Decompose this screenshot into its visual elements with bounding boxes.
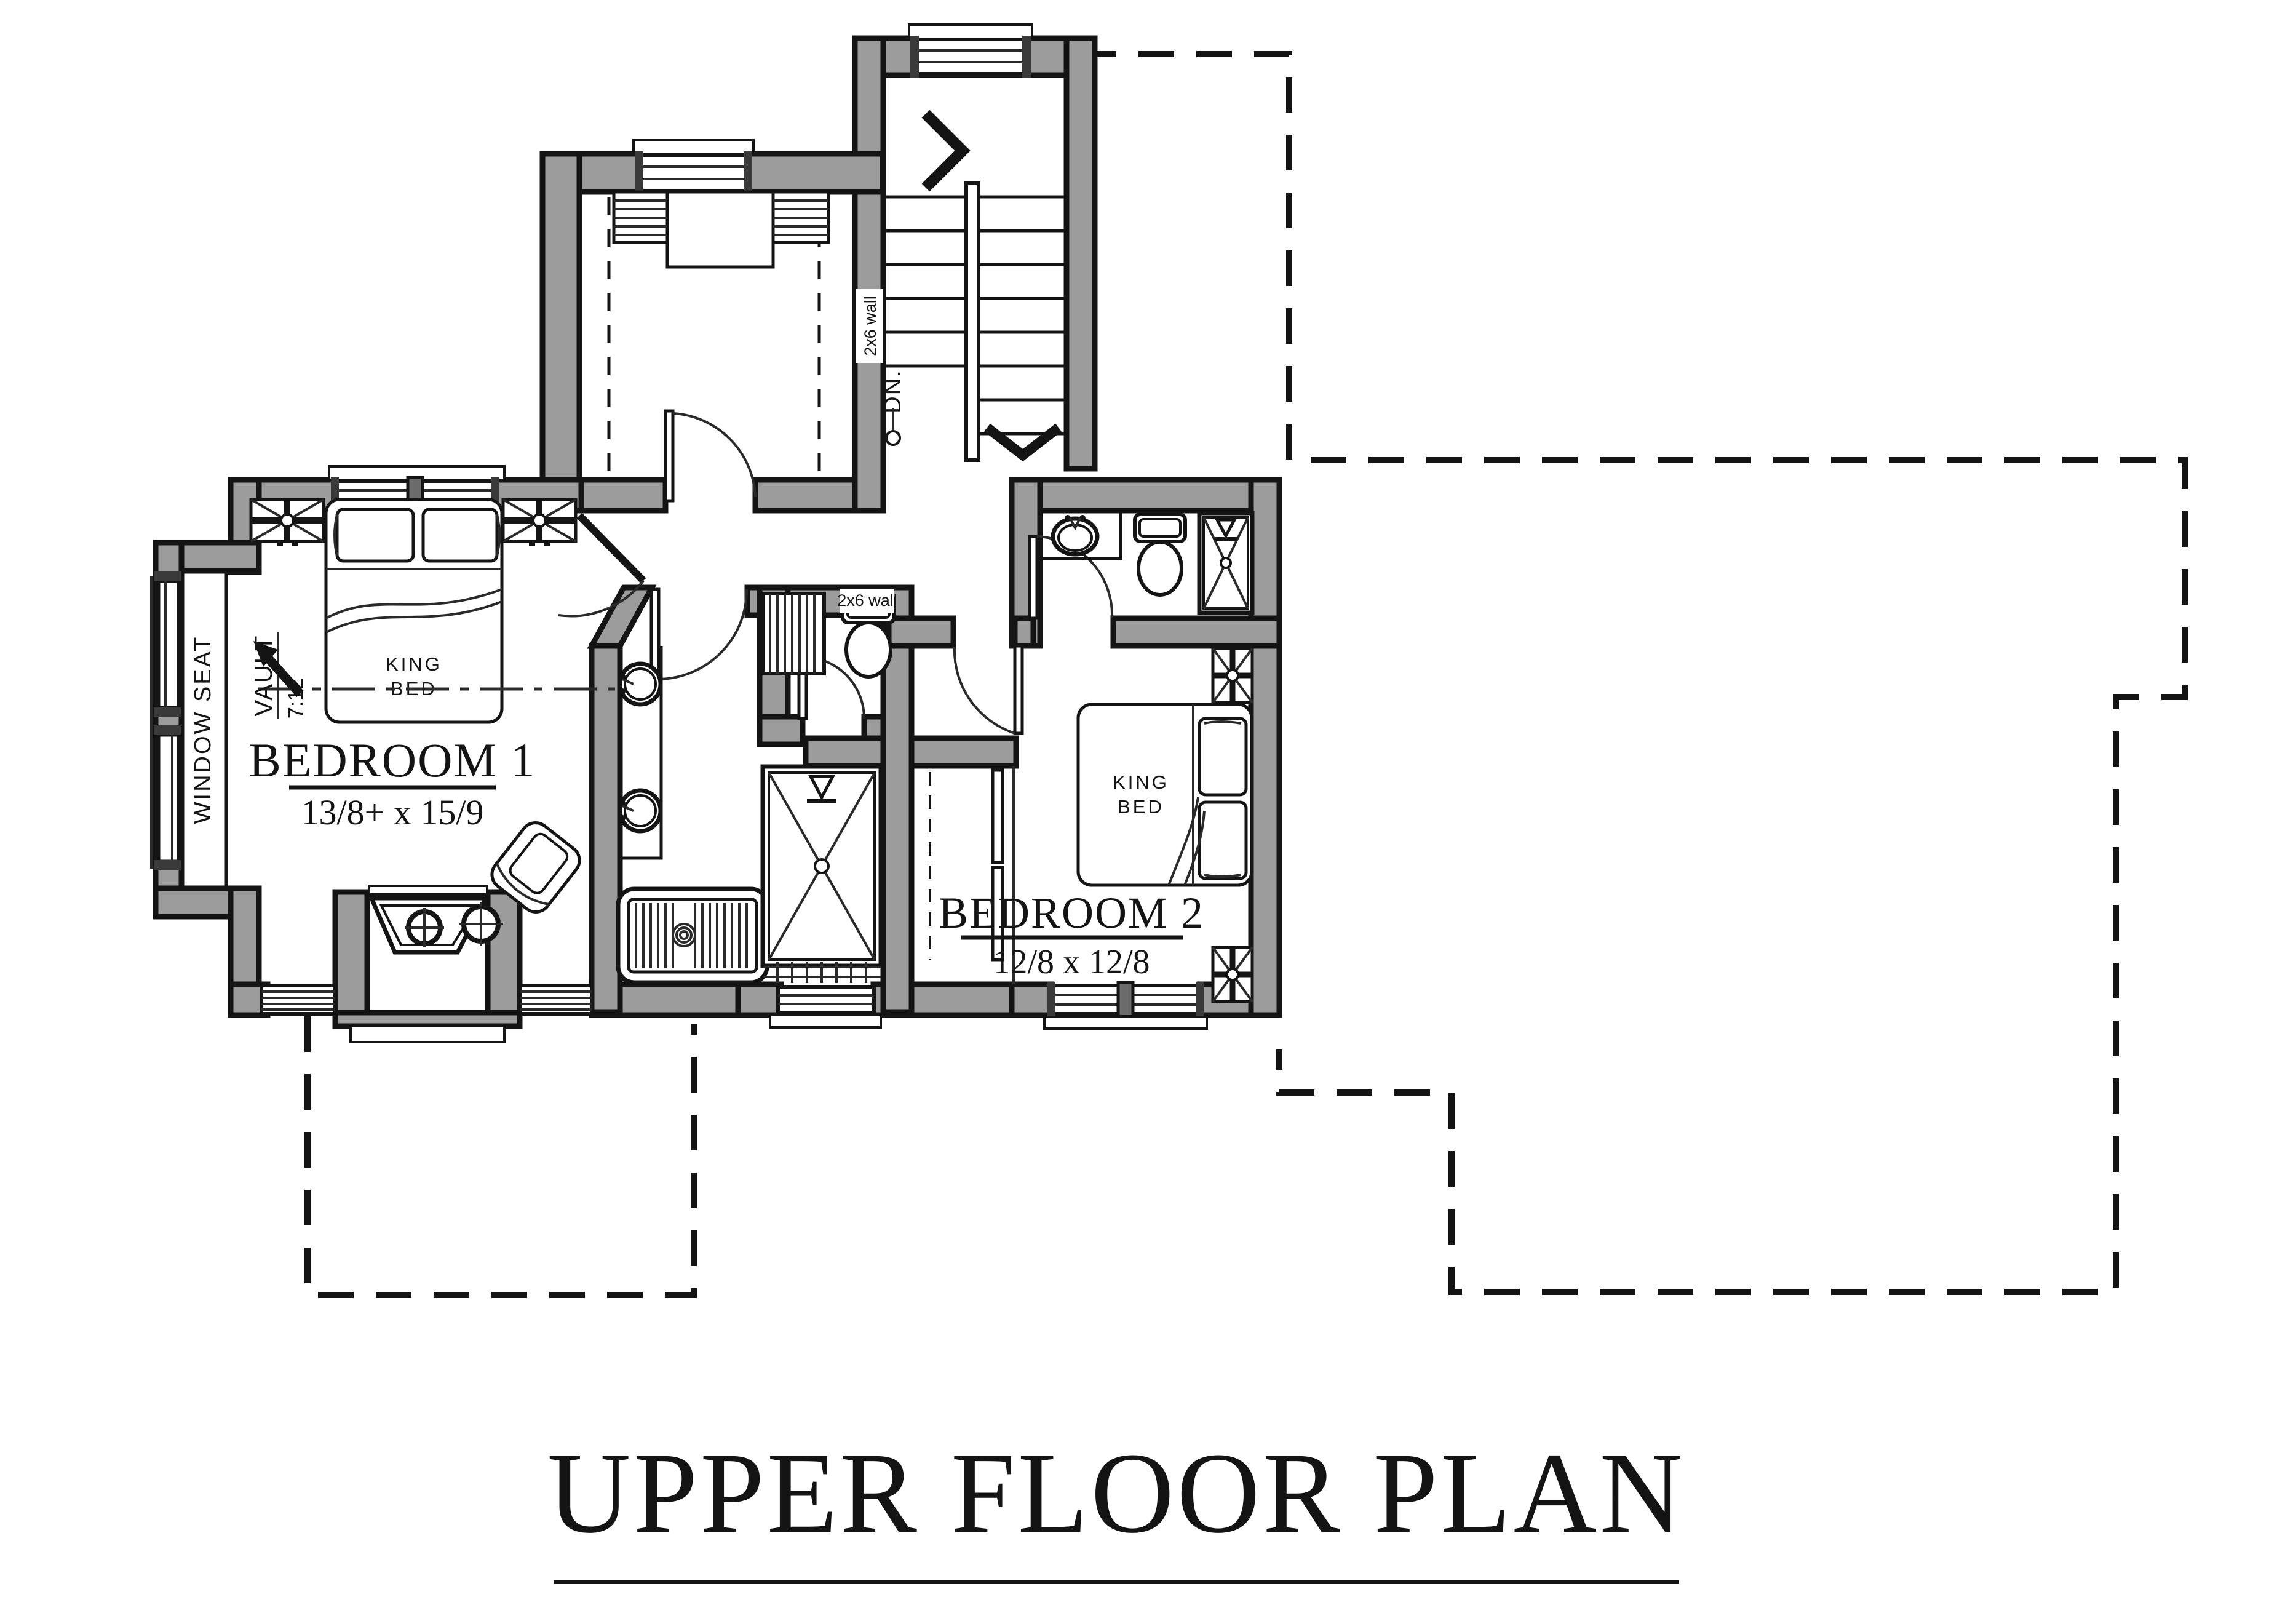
bed1-king-label: KING [386,653,442,675]
bed2-king-label: KING [1113,771,1169,793]
wall-shower-top [806,738,883,766]
window-toproom [634,140,753,194]
nightstand-1 [251,500,324,546]
wall-closet-top [912,738,1016,766]
nightstand-2 [503,500,576,546]
pillow [337,509,413,561]
master-shower [763,767,881,983]
bay-sill [369,886,487,894]
wall-stair-left [855,38,883,511]
door-toproom [665,411,673,501]
wall-wc-south-left [760,717,803,744]
wall-note-stair: 2x6 wall [861,296,880,356]
nightstand-3 [1213,648,1252,703]
nightstand-4 [1213,947,1252,1002]
wall-bed2-divider-left [889,618,953,646]
sink-1 [619,664,661,704]
wall-toproom-left [542,154,579,511]
wall-south-closet [912,984,1012,1015]
window-post [910,36,919,78]
drawing-title: UPPER FLOOR PLAN [547,1428,1685,1557]
bedroom1-name: BEDROOM 1 [249,733,536,787]
pillow [1199,802,1246,878]
bath2-toilet [1135,514,1185,595]
door-bedroom2 [1015,646,1022,733]
wall-note-bath: 2x6 wall [837,591,897,610]
stair-center-rail [966,183,979,460]
wall-south-3 [738,984,781,1015]
down-leader-dot [886,431,900,445]
door-bath2 [1030,536,1037,618]
window-bedroom2-south [1044,982,1207,1029]
window-bath-south [770,987,881,1027]
window-bedroom1-south-left [261,986,335,1014]
window-bath-south-left [520,986,592,1014]
bedroom2-dims: 12/8 x 12/8 [993,943,1150,981]
pillow [423,509,497,561]
wall-bath2-north [1040,480,1279,511]
wall-bath-west [592,646,620,1012]
bed2-bed-label: BED [1118,796,1164,818]
closet-door-panel [993,770,1003,862]
window-post [1022,36,1031,78]
bathtub [618,889,767,982]
bath2-shower [1199,513,1252,613]
bedroom2-bed: KING BED [1078,704,1252,885]
wall-vanitybay-left [335,892,367,1013]
window-seat-label: WINDOW SEAT [190,635,216,824]
floor-plan-page: DN. 2x6 wall [0,0,2296,1597]
wall-hall-north-left [581,480,665,511]
wall-bedroom2-east [1251,480,1279,1015]
sink-2 [619,791,661,831]
wall-bed2-divider-mid [1015,618,1033,646]
floor-plan-drawing: DN. 2x6 wall [0,0,2296,1597]
wall-bedroom2-south-left [1012,984,1052,1015]
window-stair [909,25,1032,78]
wall-hall-north-right [755,480,855,511]
bedroom2-name: BEDROOM 2 [939,888,1204,938]
wall-stair-right [1067,38,1095,469]
pillow [1199,719,1246,795]
builtin-center-box [667,192,773,267]
wall-bed2-divider-right [1113,618,1279,646]
bay-window-box [351,1026,504,1042]
stair-down-label: DN. [880,369,906,413]
wall-vanitybay-bottom [335,1013,520,1026]
bedroom1-dims: 13/8+ x 15/9 [301,792,484,832]
linen-shelves [763,594,824,674]
